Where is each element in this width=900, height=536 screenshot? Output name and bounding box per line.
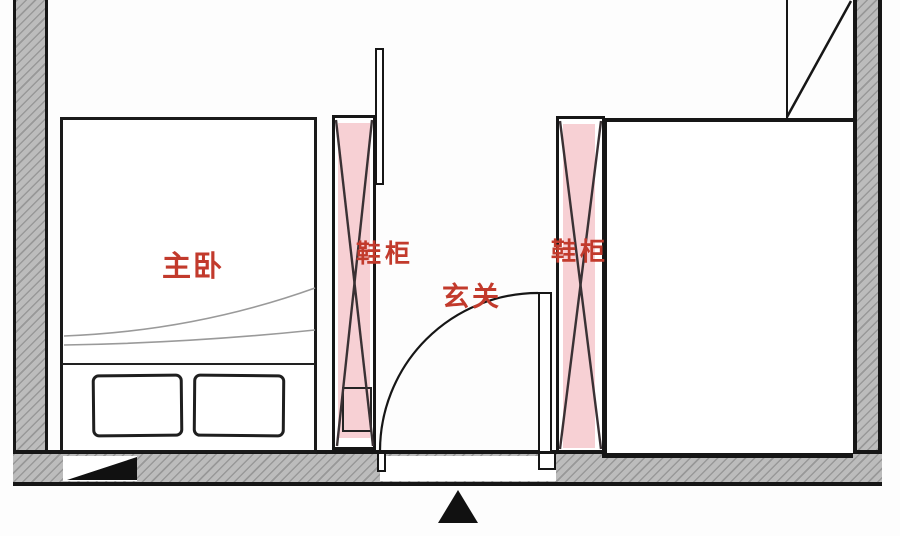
right-room (602, 118, 853, 458)
corner-cabinet-diagonal (787, 1, 851, 117)
partition-panel (375, 48, 384, 185)
label-master-bedroom: 主卧 (162, 243, 224, 285)
shoe-cabinet-right-highlight (563, 124, 595, 448)
entry-door-leaf (538, 292, 552, 453)
shoe-cabinet-left-drawer (342, 387, 372, 432)
door-swing-arc (380, 293, 538, 451)
right-wall (853, 0, 882, 486)
label-entrance: 玄关 (442, 275, 502, 314)
door-jamb-right (538, 454, 556, 470)
entrance-arrow-icon (438, 490, 478, 523)
door-jamb-left (377, 454, 386, 472)
label-shoe-cabinet-right: 鞋柜 (551, 232, 609, 268)
wall-break-gap (63, 456, 137, 481)
pillow-right (193, 374, 286, 438)
pillow-left (92, 374, 184, 438)
floor-plan: 主卧 鞋柜 鞋柜 玄关 (0, 0, 900, 536)
corner-cabinet-edge (786, 0, 788, 118)
left-wall (13, 0, 48, 486)
label-shoe-cabinet-left: 鞋柜 (356, 234, 414, 270)
entry-door-opening (380, 456, 556, 481)
